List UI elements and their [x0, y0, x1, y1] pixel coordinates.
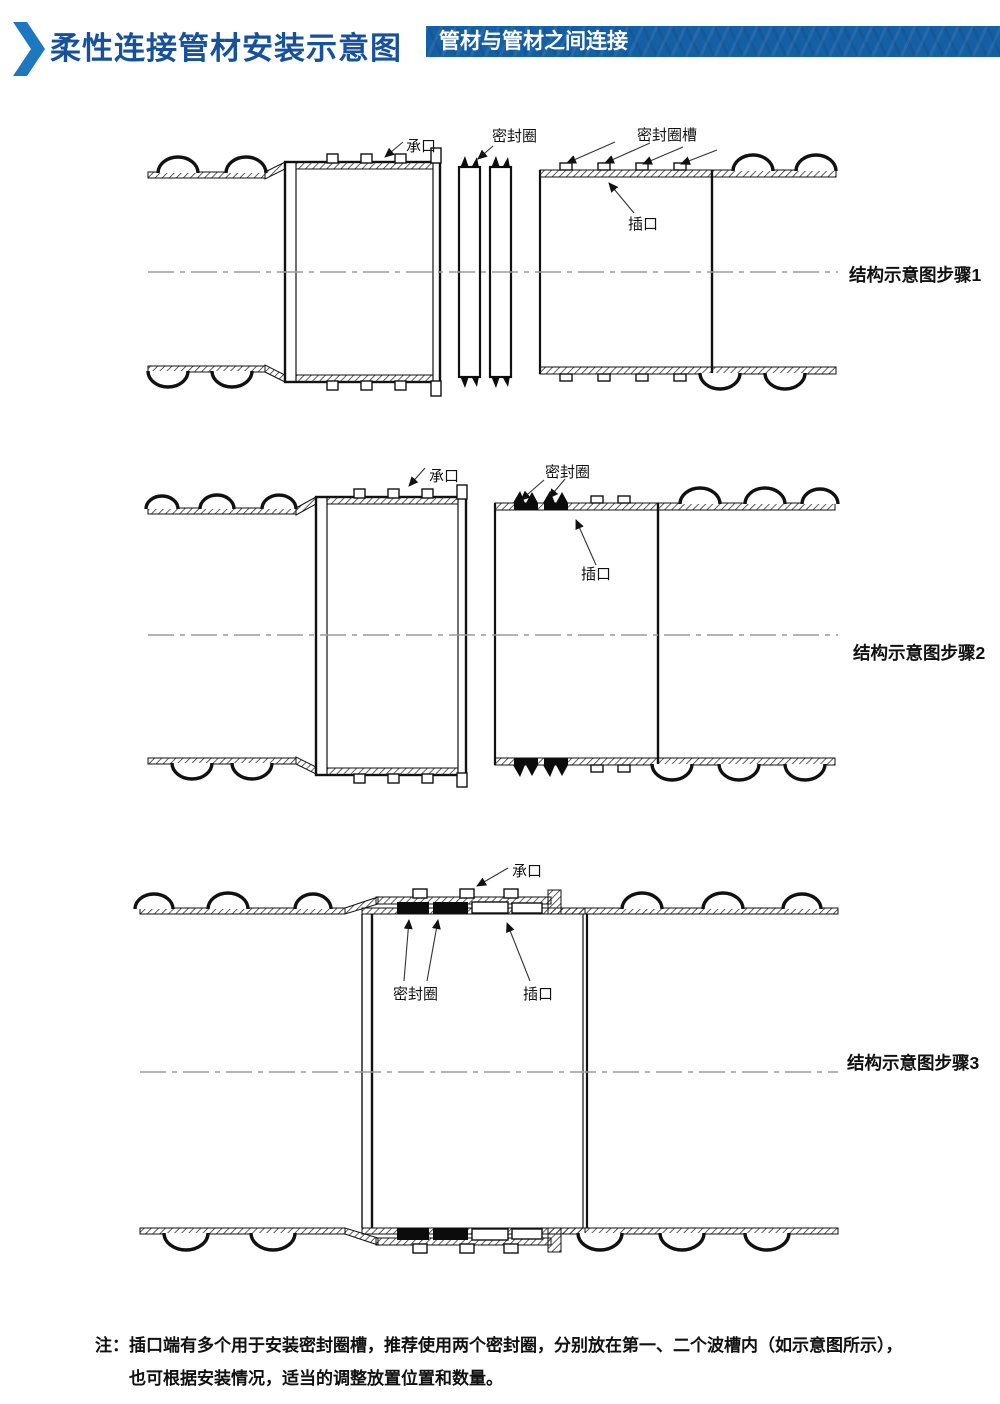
spigot-label-step2: 插口: [581, 566, 611, 583]
step2-left-pipe: [146, 495, 316, 779]
socket-label-step1: 承口: [406, 138, 436, 155]
step3-joint: [345, 889, 587, 1253]
note-text: 插口端有多个用于安装密封圈槽，推荐使用两个密封圈，分别放在第一、二个波槽内（如示…: [129, 1329, 903, 1395]
spigot-label-step1: 插口: [628, 216, 658, 233]
step2-socket-bell: [316, 485, 467, 787]
socket-label-step3: 承口: [512, 863, 542, 880]
step1-diagram: 承口 密封圈 密封圈槽 插口: [148, 127, 838, 396]
note-line-2: 也可根据安装情况，适当的调整放置位置和数量。: [129, 1369, 503, 1388]
installation-diagram: 承口 密封圈 密封圈槽 插口: [0, 0, 1000, 1300]
spigot-label-step3: 插口: [523, 986, 553, 1003]
step3-diagram: 承口 密封圈 插口: [135, 863, 838, 1253]
step1-caption: 结构示意图步骤1: [849, 262, 981, 287]
page: 柔性连接管材安装示意图 管材与管材之间连接: [0, 0, 1000, 1404]
step3-caption: 结构示意图步骤3: [847, 1050, 979, 1075]
seal-ring-label-step1: 密封圈: [492, 128, 537, 145]
socket-label-step2: 承口: [429, 468, 459, 485]
seal-ring-groove-label-step1: 密封圈槽: [637, 127, 697, 144]
step2-right-pipe: [495, 488, 838, 780]
note-prefix: 注：: [95, 1329, 129, 1395]
seal-ring-label-step2: 密封圈: [545, 464, 590, 481]
note-line-1: 插口端有多个用于安装密封圈槽，推荐使用两个密封圈，分别放在第一、二个波槽内（如示…: [129, 1336, 903, 1355]
step2-caption: 结构示意图步骤2: [853, 640, 985, 665]
seal-ring-label-step3: 密封圈: [393, 986, 438, 1003]
note: 注： 插口端有多个用于安装密封圈槽，推荐使用两个密封圈，分别放在第一、二个波槽内…: [95, 1329, 975, 1395]
step2-diagram: 承口 密封圈 插口: [146, 464, 838, 787]
